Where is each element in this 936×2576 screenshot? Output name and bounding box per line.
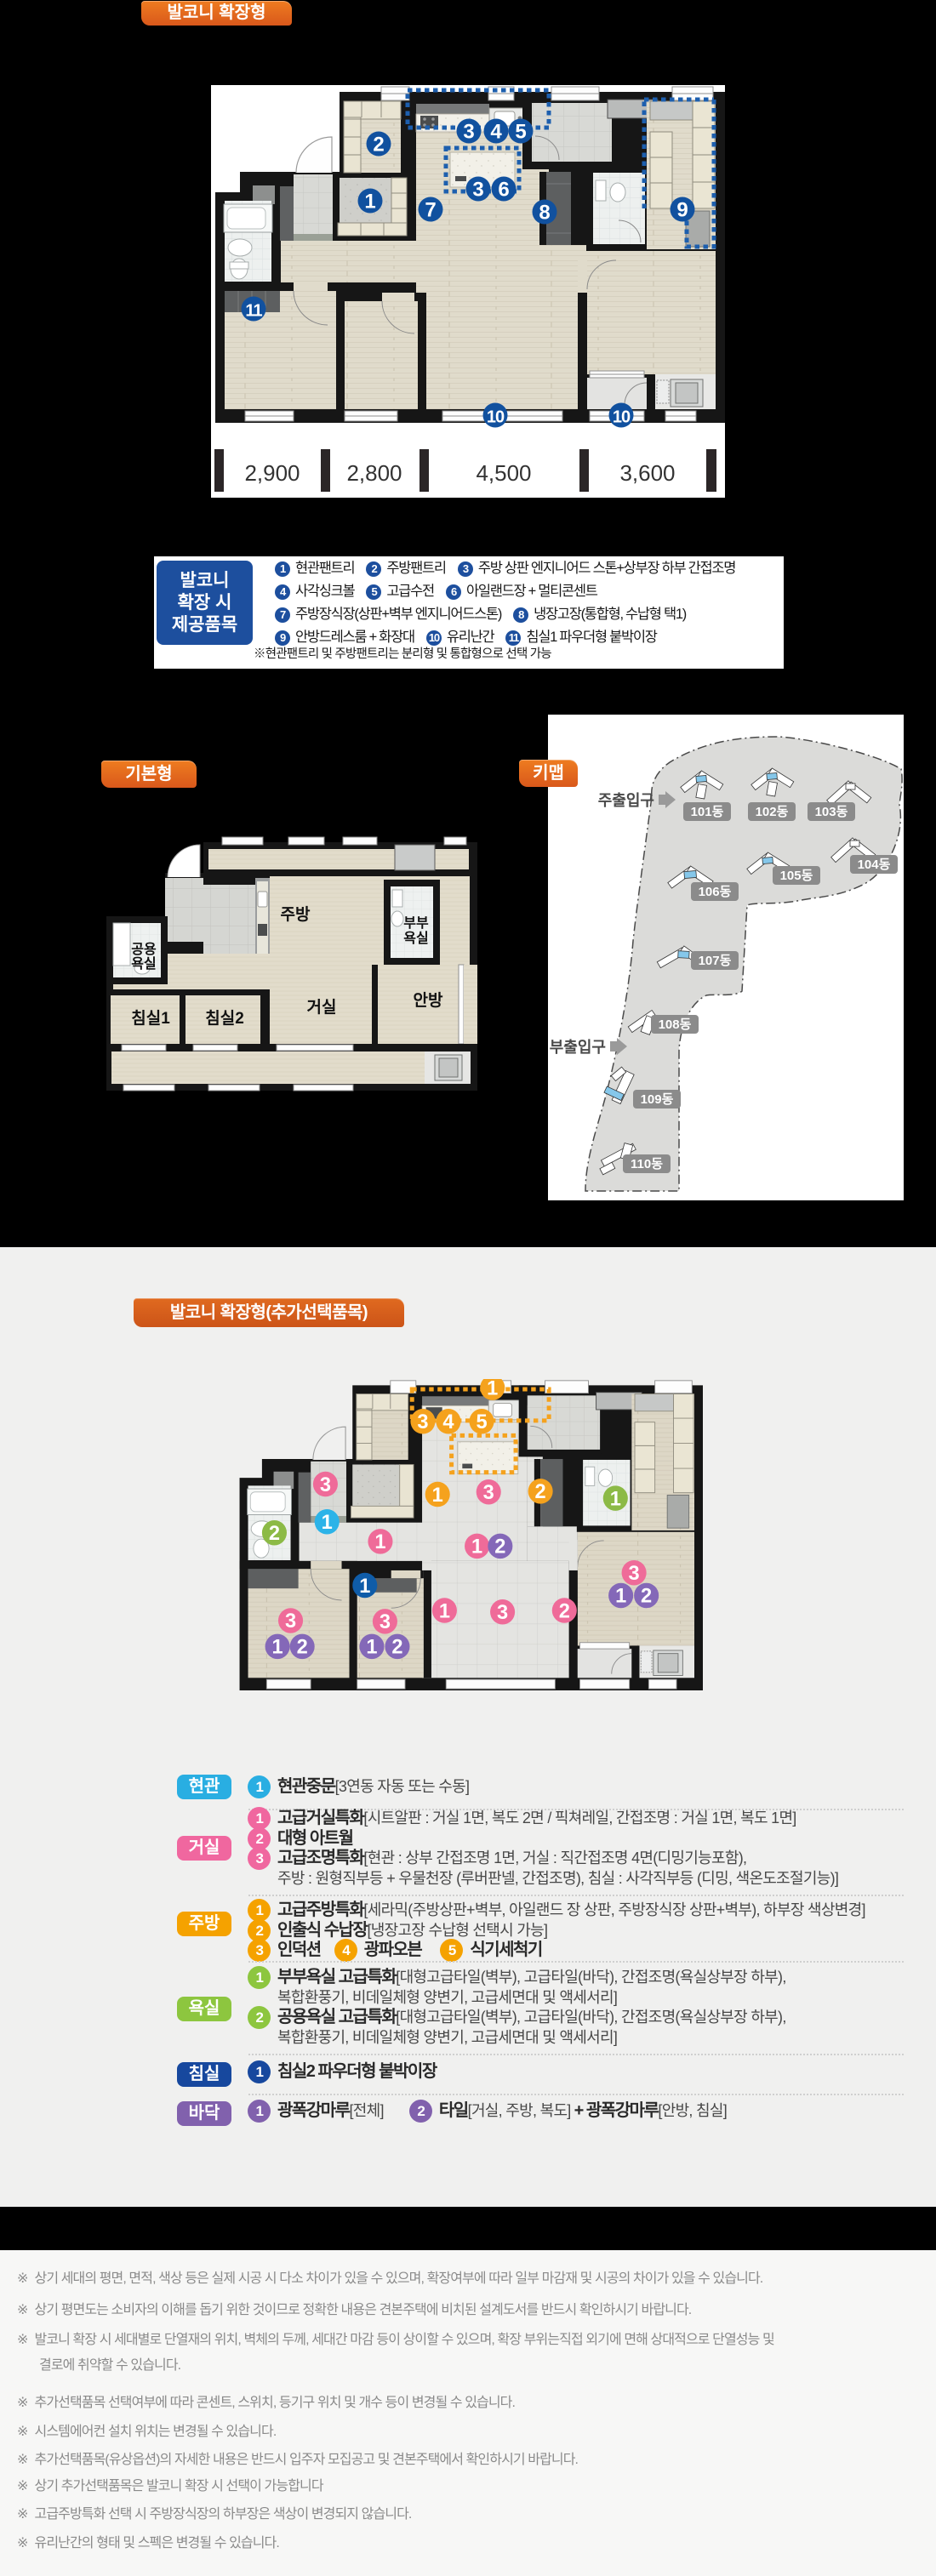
svg-text:거실: 거실 — [307, 998, 337, 1017]
svg-text:1: 1 — [439, 1599, 450, 1622]
svg-text:8: 8 — [539, 202, 550, 225]
svg-text:2,800: 2,800 — [346, 460, 402, 486]
svg-text:2: 2 — [269, 1522, 280, 1545]
svg-text:3: 3 — [472, 179, 483, 202]
svg-text:4: 4 — [442, 1411, 454, 1433]
svg-text:2: 2 — [494, 1536, 505, 1559]
svg-text:1: 1 — [366, 1636, 377, 1659]
svg-text:3: 3 — [483, 1481, 494, 1504]
svg-text:9: 9 — [676, 199, 688, 222]
svg-text:1: 1 — [364, 191, 375, 214]
svg-text:108동: 108동 — [659, 1017, 692, 1032]
svg-text:3: 3 — [285, 1610, 296, 1633]
svg-text:10: 10 — [613, 408, 631, 427]
svg-text:4: 4 — [490, 121, 502, 144]
svg-text:1: 1 — [374, 1530, 385, 1553]
svg-text:11: 11 — [245, 302, 262, 321]
svg-text:7: 7 — [425, 199, 436, 222]
svg-text:2,900: 2,900 — [244, 460, 300, 486]
svg-text:2: 2 — [641, 1585, 652, 1608]
svg-text:5: 5 — [515, 121, 526, 144]
svg-text:10: 10 — [487, 408, 505, 427]
svg-text:3: 3 — [320, 1473, 331, 1496]
svg-text:3: 3 — [497, 1601, 508, 1624]
svg-text:104동: 104동 — [858, 858, 891, 872]
svg-text:부부: 부부 — [403, 915, 429, 931]
svg-text:6: 6 — [498, 179, 509, 202]
svg-text:1: 1 — [610, 1487, 621, 1510]
svg-text:2: 2 — [373, 134, 384, 157]
svg-text:107동: 107동 — [699, 954, 732, 968]
svg-text:침실2: 침실2 — [205, 1009, 244, 1028]
svg-text:1: 1 — [432, 1484, 443, 1507]
svg-text:1: 1 — [272, 1636, 283, 1659]
svg-text:욕실: 욕실 — [131, 956, 156, 972]
svg-text:101동: 101동 — [691, 805, 724, 819]
svg-text:주출입구: 주출입구 — [598, 791, 654, 809]
svg-text:5: 5 — [476, 1411, 487, 1433]
svg-text:안방: 안방 — [414, 991, 443, 1010]
svg-text:3: 3 — [417, 1411, 428, 1433]
svg-text:2: 2 — [391, 1636, 402, 1659]
svg-text:공용: 공용 — [131, 942, 157, 957]
svg-text:3: 3 — [380, 1610, 391, 1633]
svg-text:주방: 주방 — [281, 905, 311, 924]
svg-text:1: 1 — [471, 1536, 482, 1559]
svg-text:2: 2 — [297, 1636, 308, 1659]
svg-text:110동: 110동 — [631, 1157, 663, 1171]
svg-text:3,600: 3,600 — [619, 460, 675, 486]
svg-text:1: 1 — [487, 1379, 498, 1399]
svg-text:3: 3 — [629, 1562, 640, 1585]
svg-text:2: 2 — [535, 1480, 546, 1503]
svg-text:102동: 102동 — [756, 805, 789, 819]
svg-text:침실1: 침실1 — [131, 1009, 170, 1028]
svg-text:4,500: 4,500 — [476, 460, 531, 486]
svg-text:103동: 103동 — [815, 805, 848, 819]
svg-text:1: 1 — [359, 1575, 370, 1598]
svg-text:105동: 105동 — [780, 869, 813, 883]
svg-text:1: 1 — [322, 1511, 333, 1534]
svg-text:욕실: 욕실 — [403, 931, 428, 946]
svg-text:109동: 109동 — [641, 1092, 674, 1107]
svg-text:3: 3 — [463, 121, 474, 144]
svg-text:1: 1 — [615, 1585, 626, 1608]
svg-text:106동: 106동 — [699, 885, 732, 899]
svg-text:부출입구: 부출입구 — [550, 1038, 606, 1056]
svg-text:2: 2 — [559, 1599, 570, 1622]
